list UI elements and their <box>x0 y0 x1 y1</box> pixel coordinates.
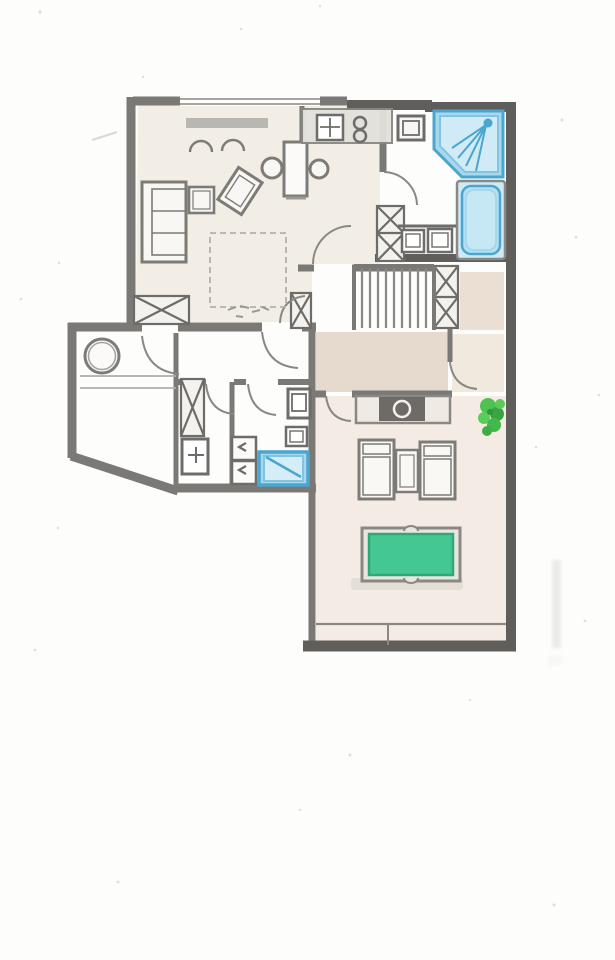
toilet-top <box>398 116 424 140</box>
kitchen-sink <box>317 115 343 140</box>
laundry-shaft-hatch <box>181 379 204 436</box>
living-closet-hatch <box>134 296 189 324</box>
shower-tray <box>259 452 308 485</box>
beds <box>359 440 455 499</box>
bathtub <box>457 181 505 259</box>
toilet-lower <box>286 389 310 446</box>
chimney-hatch <box>377 206 404 261</box>
corridor-floor <box>316 332 448 392</box>
washbasin-small <box>182 439 208 474</box>
bedroom-floor <box>316 396 506 646</box>
stool-left <box>262 158 282 178</box>
bed-left <box>359 440 394 499</box>
double-washbasin <box>398 226 456 252</box>
green-table <box>351 526 463 590</box>
stool-right <box>310 160 328 178</box>
side-table <box>189 187 214 213</box>
round-table <box>85 339 119 373</box>
floor-plan-page <box>0 0 615 960</box>
tall-cabinet <box>284 142 307 198</box>
window-sideboard <box>186 118 268 128</box>
sofa <box>142 182 186 262</box>
stair-landing-floor <box>460 272 504 330</box>
kitchen-counter <box>302 109 392 143</box>
kitchen <box>302 109 392 143</box>
stove-counter <box>356 396 450 423</box>
washing-machines <box>232 437 256 484</box>
bed-right <box>420 442 455 499</box>
floor-plan-canvas <box>0 0 615 960</box>
stair-right-shaft-hatch <box>434 266 458 328</box>
nightstand <box>396 450 418 492</box>
